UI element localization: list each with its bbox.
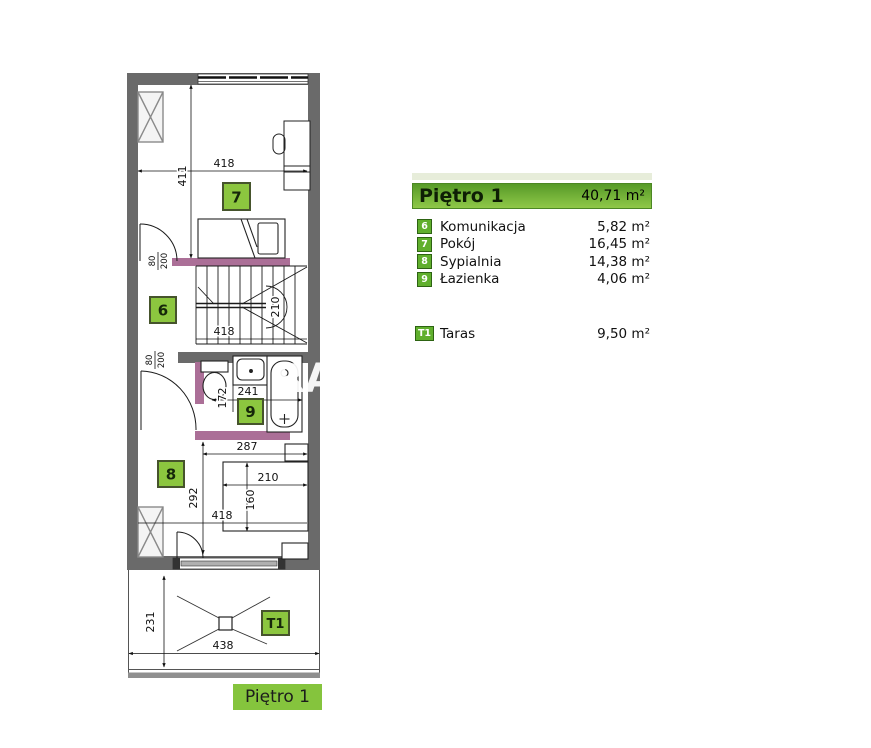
room-badge-t1: T1	[262, 611, 289, 635]
svg-text:200: 200	[160, 253, 170, 269]
legend-row-lazienka: 9 Łazienka 4,06 m²	[412, 271, 652, 289]
dim-room8-inner-width: 287	[237, 440, 258, 453]
dim-bed-depth: 160	[244, 490, 257, 511]
svg-text:6: 6	[158, 302, 168, 320]
legend-row-taras: T1 Taras 9,50 m²	[412, 325, 652, 343]
window-bottom	[173, 558, 285, 569]
svg-text:7: 7	[231, 189, 241, 207]
door-size-label-upper: 80 200	[148, 252, 170, 270]
legend-badge-t1: T1	[415, 326, 434, 341]
dim-stairs-width: 418	[214, 325, 235, 338]
legend-row-pokoj: 7 Pokój 16,45 m²	[412, 236, 652, 254]
dim-stairs-turn: 210	[269, 297, 282, 318]
room-badge-6: 6	[150, 297, 176, 323]
door-terrace	[177, 532, 203, 558]
dim-terrace-depth: 231	[144, 612, 157, 633]
room-badge-7: 7	[223, 183, 250, 210]
dim-room7-depth: 411	[176, 166, 189, 187]
svg-text:80: 80	[145, 355, 155, 366]
dim-bed-width: 210	[258, 471, 279, 484]
legend-room-name: Taras	[440, 326, 475, 342]
svg-text:T1: T1	[267, 617, 285, 632]
svg-text:200: 200	[157, 352, 167, 368]
double-bed	[223, 444, 308, 559]
dim-room8-width: 418	[212, 509, 233, 522]
legend-top-strip	[412, 173, 652, 180]
legend-header: Piętro 1 40,71 m²	[412, 183, 652, 209]
dim-bath-width: 241	[238, 385, 259, 398]
door-size-label-lower: 80 200	[145, 351, 167, 369]
window-top	[198, 74, 308, 84]
legend-title: Piętro 1	[419, 185, 504, 207]
svg-text:8: 8	[166, 466, 176, 484]
legend-badge-6: 6	[417, 219, 432, 234]
legend-room-list: 6 Komunikacja 5,82 m² 7 Pokój 16,45 m² 8…	[412, 218, 652, 343]
single-bed	[198, 219, 285, 258]
door-hall	[141, 371, 196, 430]
desk	[284, 121, 310, 190]
legend-room-area: 14,38 m²	[588, 254, 652, 270]
floorplan-page: 210	[0, 0, 871, 748]
floor-label: Piętro 1	[233, 684, 322, 710]
legend-row-sypialnia: 8 Sypialnia 14,38 m²	[412, 253, 652, 271]
room-badge-9: 9	[238, 399, 263, 424]
legend-room-name: Sypialnia	[440, 254, 501, 270]
floorplan-drawing: 210	[0, 0, 871, 748]
legend-room-area: 5,82 m²	[597, 219, 652, 235]
legend-panel: Piętro 1 40,71 m² 6 Komunikacja 5,82 m² …	[412, 173, 652, 343]
sink-icon	[233, 356, 268, 385]
legend-room-name: Komunikacja	[440, 219, 526, 235]
dim-room7-width: 418	[214, 157, 235, 170]
legend-room-area: 9,50 m²	[597, 326, 652, 342]
legend-room-name: Łazienka	[440, 271, 499, 287]
dim-bath-depth: 172	[216, 388, 229, 409]
legend-badge-7: 7	[417, 237, 432, 252]
legend-room-area: 4,06 m²	[597, 271, 652, 287]
dim-terrace-width: 438	[213, 639, 234, 652]
wardrobe-box-bottom	[138, 507, 163, 557]
shaft-box-top	[138, 92, 163, 142]
room-badge-8: 8	[158, 461, 184, 487]
door-room7	[140, 224, 177, 261]
legend-badge-9: 9	[417, 272, 432, 287]
legend-row-komunikacja: 6 Komunikacja 5,82 m²	[412, 218, 652, 236]
legend-badge-8: 8	[417, 254, 432, 269]
dim-room8-depth: 292	[187, 488, 200, 509]
svg-text:9: 9	[245, 403, 255, 421]
chair-icon	[273, 133, 285, 155]
legend-total-area: 40,71 m²	[581, 188, 645, 204]
svg-text:80: 80	[148, 256, 158, 267]
watermark-text: RA	[274, 356, 336, 402]
legend-room-name: Pokój	[440, 236, 475, 252]
legend-room-area: 16,45 m²	[588, 236, 652, 252]
